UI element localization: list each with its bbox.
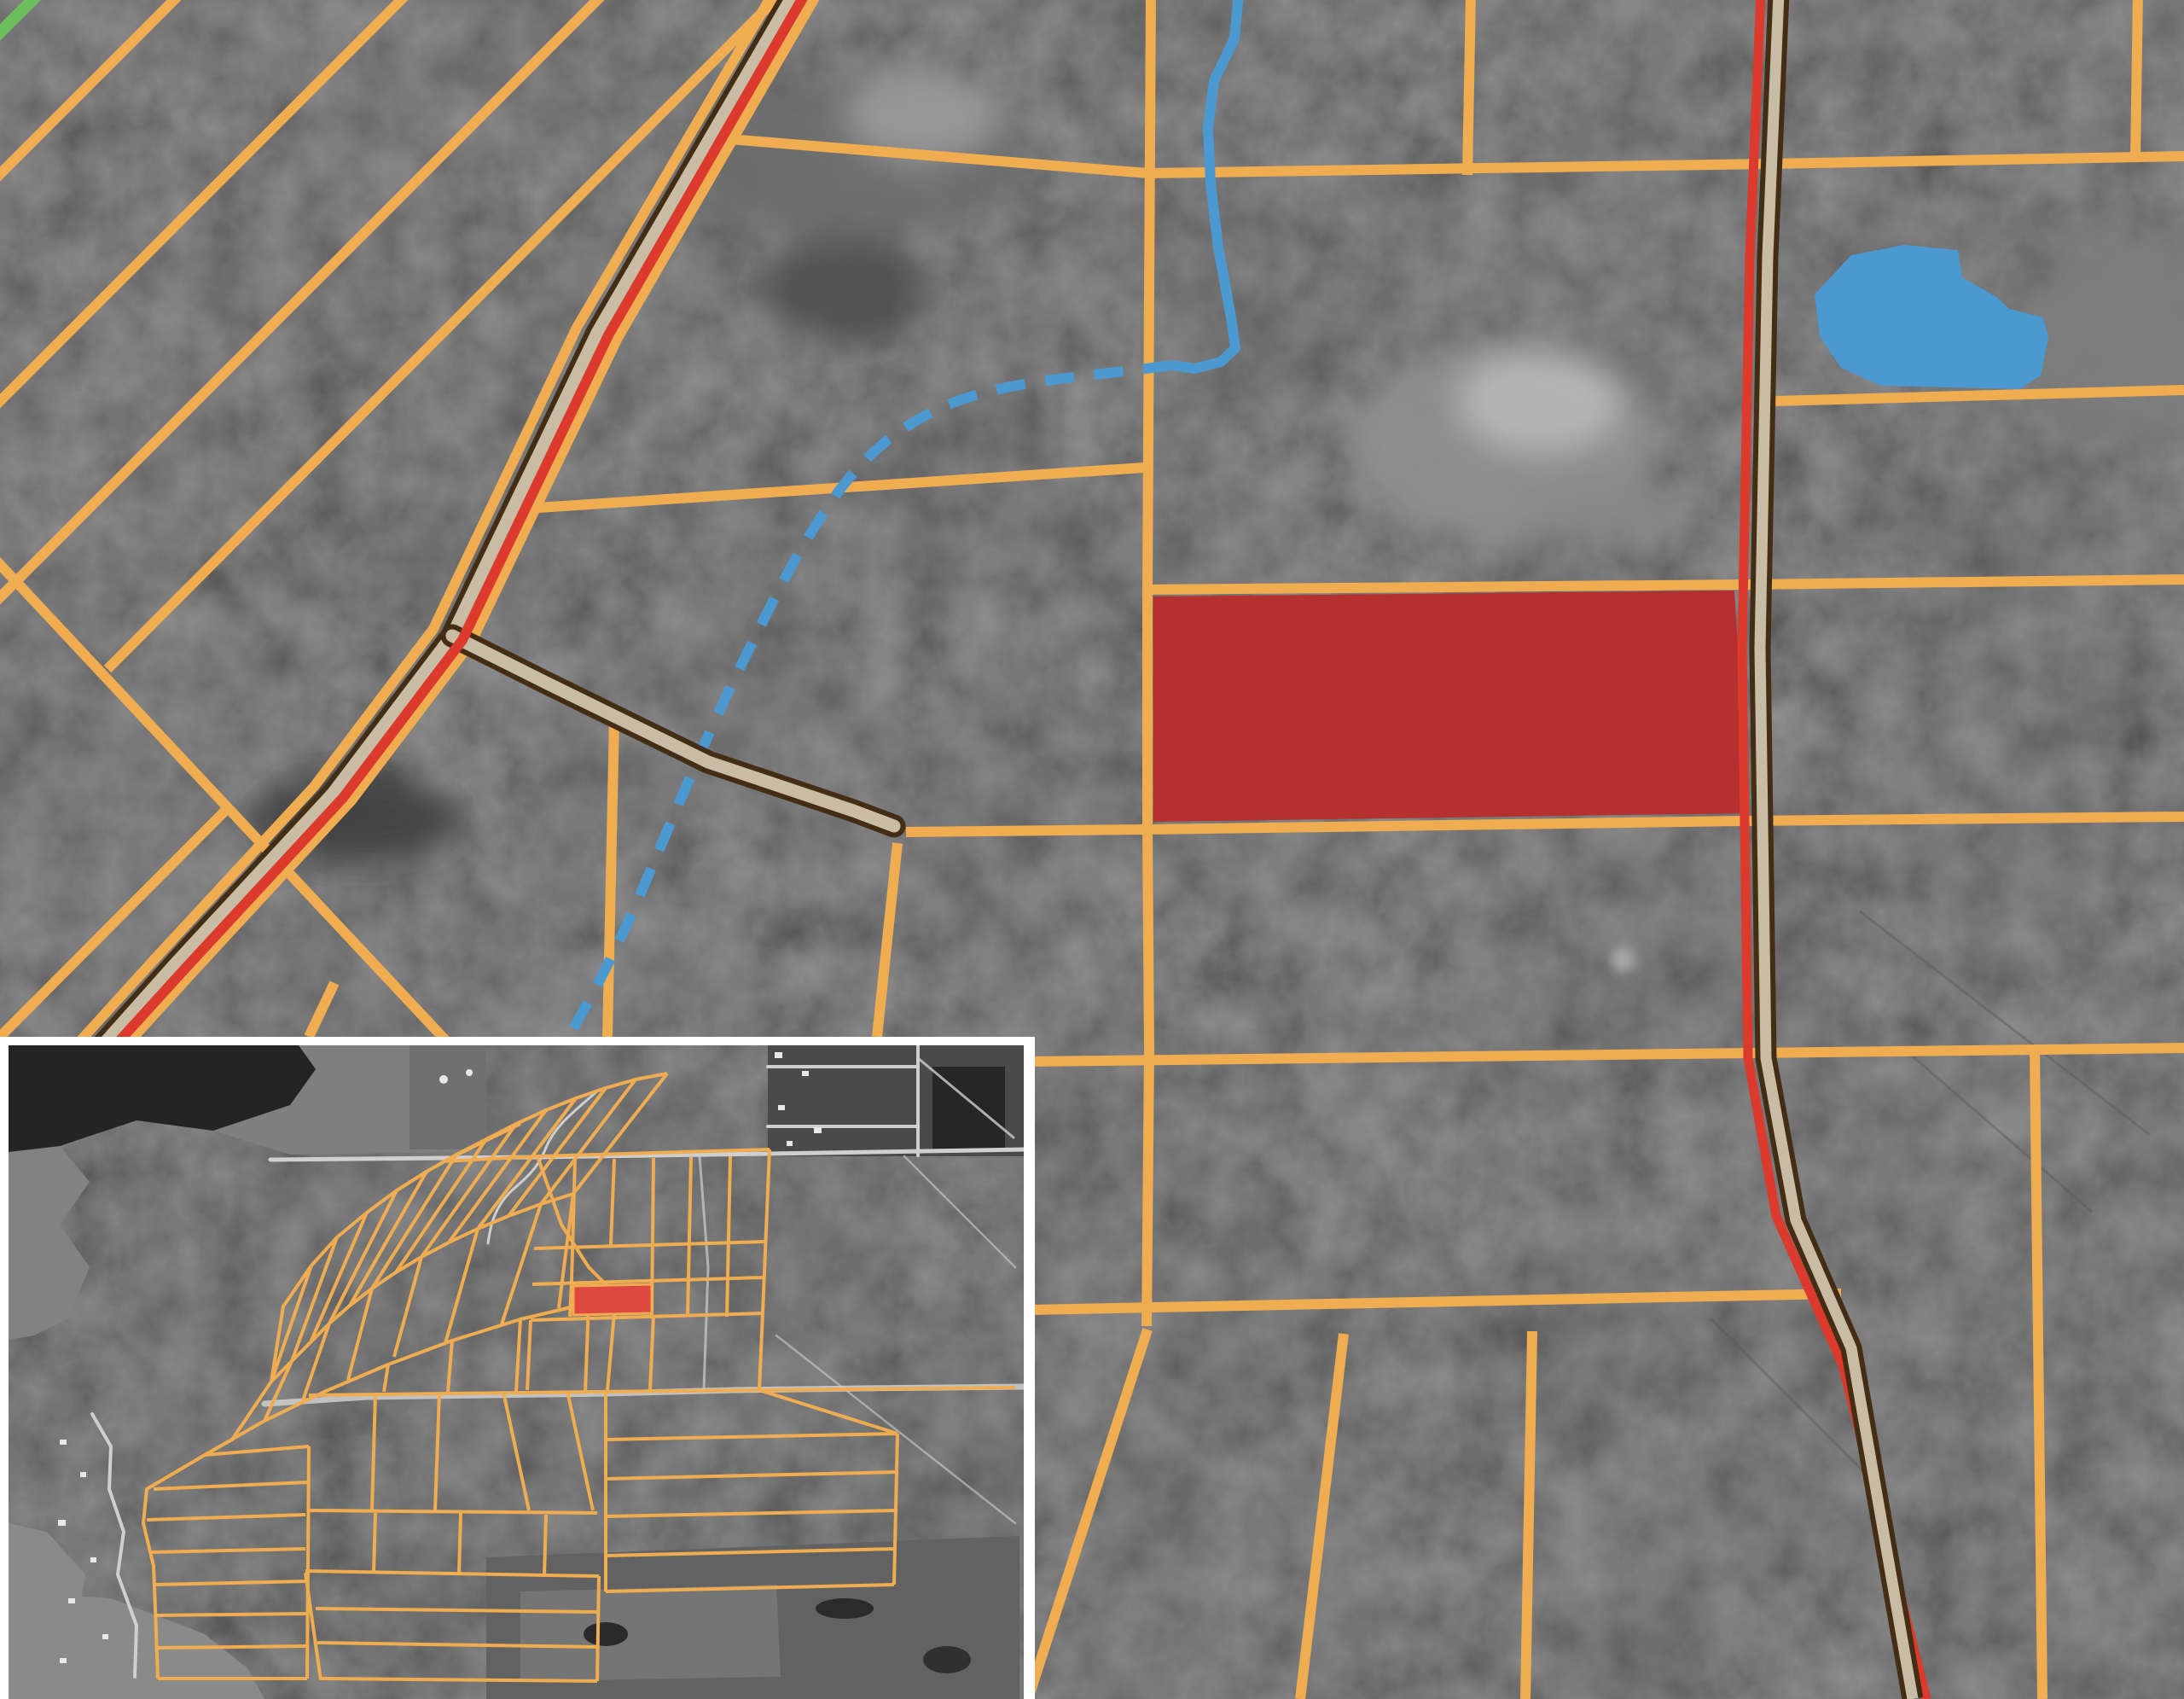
inset-highlight-parcel[interactable] — [573, 1284, 652, 1315]
parcel-line — [1147, 0, 1151, 1326]
parcel-line — [607, 719, 614, 1037]
map-viewport[interactable] — [0, 0, 2184, 1699]
parcel-line — [1525, 1331, 1532, 1699]
highlighted-parcel[interactable] — [1153, 591, 1748, 822]
overview-inset[interactable] — [0, 1037, 1035, 1699]
parcel-line — [1467, 0, 1471, 175]
parcel-line — [2135, 0, 2138, 158]
overview-inset-map[interactable] — [9, 1045, 1024, 1699]
